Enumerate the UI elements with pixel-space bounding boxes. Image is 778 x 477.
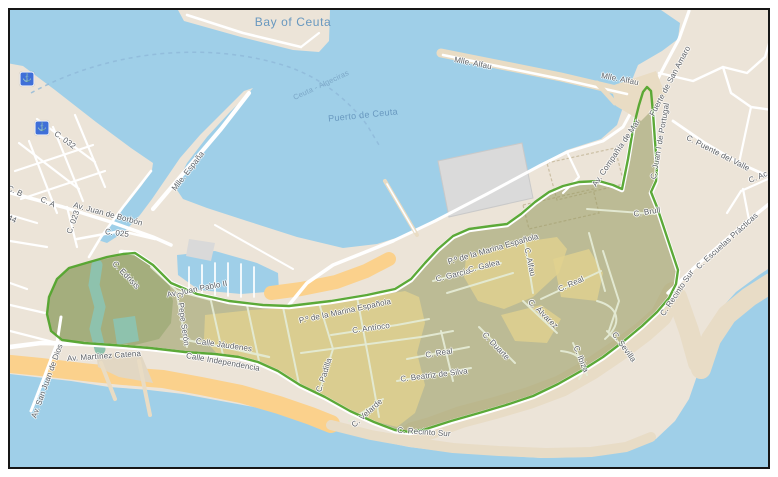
street-label: C. Padilla <box>314 357 333 393</box>
street-label: C. Puente del Valle <box>685 133 751 173</box>
street-label: Mlle. España <box>170 150 206 193</box>
street-label: C. Beatriz de Silva <box>400 366 468 383</box>
street-label: Av. Juan Pablo II <box>166 279 228 300</box>
labels-layer: Bay of CeutaCeuta - AlgecirasPuerto de C… <box>10 10 768 467</box>
street-label: Calle Jáudenes <box>195 337 252 354</box>
street-label: C. Álvarez <box>526 298 560 331</box>
street-label: C. Brull <box>633 205 661 218</box>
street-label: P.º de la Marina Española <box>447 232 540 267</box>
street-label: Av. Juan de Borbón <box>72 200 143 227</box>
street-label: C. Alfau <box>523 247 538 277</box>
street-label: C. Pepe Serón <box>175 292 191 347</box>
street-label: P.º de la Marina Española <box>298 297 392 325</box>
street-label: C. A <box>39 195 57 210</box>
street-label: 44 <box>8 213 18 225</box>
street-label: C. Duarte <box>481 330 512 362</box>
street-label: Av. Martínez Catena <box>67 349 142 363</box>
water-label: Bay of Ceuta <box>255 15 332 29</box>
street-label: C. Escuelas Prácticas <box>694 211 759 271</box>
street-label: C. Real <box>425 346 453 359</box>
street-label: Av. Compañía de Mar <box>590 118 642 189</box>
ferry-terminal-icon[interactable]: ⚓ <box>20 72 35 87</box>
water-label: Ceuta - Algeciras <box>292 68 351 102</box>
street-label: Mlle. Alfau <box>453 55 492 71</box>
water-label: Puerto de Ceuta <box>328 106 399 123</box>
street-label: Fuerte de San Amaro <box>648 44 693 117</box>
street-label: Calle Independencia <box>185 351 260 373</box>
street-label: C. B <box>8 184 24 199</box>
street-label: C. Juan I de Portugal <box>649 102 671 180</box>
street-label: C. 023 <box>65 209 82 235</box>
street-label: C. Antíoco <box>352 321 391 335</box>
map-canvas[interactable]: Bay of CeutaCeuta - AlgecirasPuerto de C… <box>8 8 770 469</box>
street-label: C. Real <box>557 274 586 293</box>
street-label: C. Edrisis <box>111 259 142 291</box>
street-label: Av. San Juan de Dios <box>29 343 64 420</box>
street-label: C. Recinto Sur <box>658 268 695 317</box>
street-label: C. Ac <box>747 169 769 185</box>
street-label: C. García <box>435 266 471 283</box>
ferry-terminal-icon[interactable]: ⚓ <box>35 121 50 136</box>
street-label: C. 032 <box>53 129 78 150</box>
street-label: C. Sevilla <box>610 330 638 363</box>
street-label: C. Recinto Sur <box>397 426 451 439</box>
street-label: C. 025 <box>104 227 129 239</box>
street-label: Mlle. Alfau <box>600 71 639 87</box>
street-label: C. Ibiza <box>572 344 591 373</box>
street-label: C. Velarde <box>350 397 385 429</box>
street-label: C. Galea <box>467 258 501 275</box>
